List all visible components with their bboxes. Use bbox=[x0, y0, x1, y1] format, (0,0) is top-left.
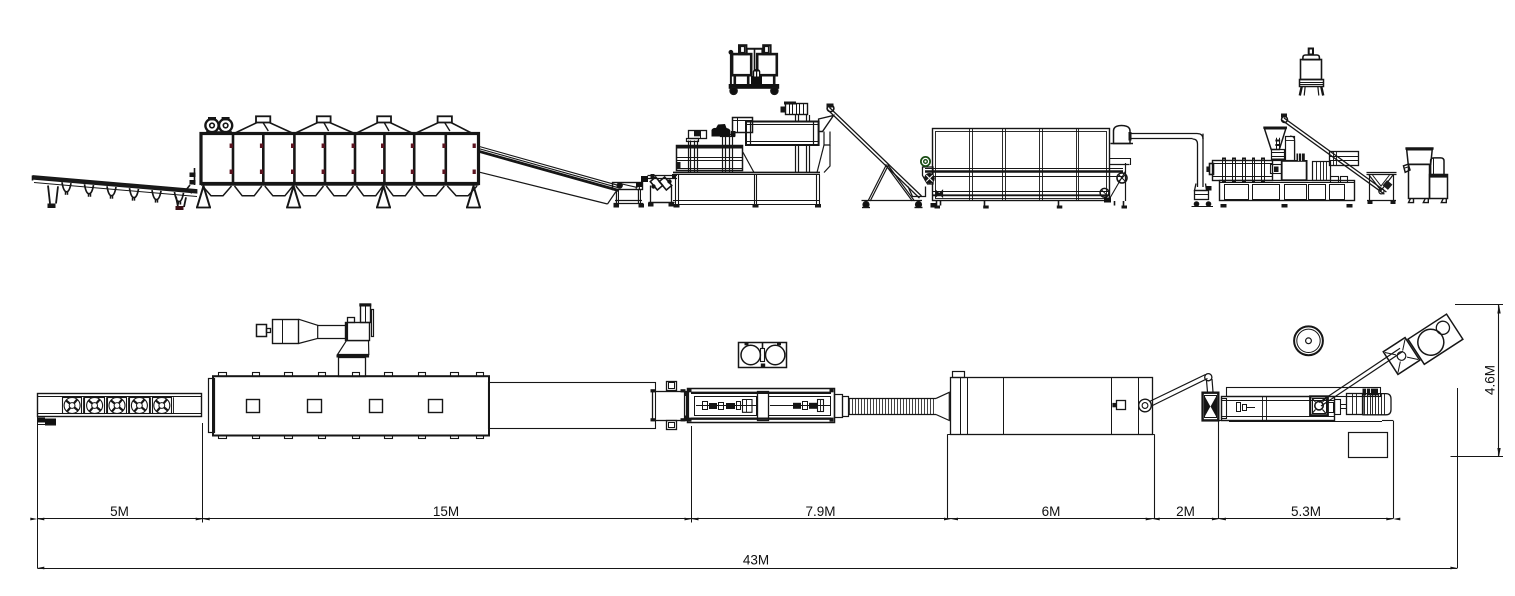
svg-text:6M: 6M bbox=[1042, 504, 1061, 519]
svg-text:15M: 15M bbox=[433, 504, 459, 519]
svg-text:5.3M: 5.3M bbox=[1291, 504, 1321, 519]
svg-text:43M: 43M bbox=[743, 553, 769, 568]
svg-text:5M: 5M bbox=[110, 504, 129, 519]
svg-text:4.6M: 4.6M bbox=[1483, 365, 1498, 395]
svg-text:7.9M: 7.9M bbox=[805, 504, 835, 519]
svg-text:2M: 2M bbox=[1176, 504, 1195, 519]
